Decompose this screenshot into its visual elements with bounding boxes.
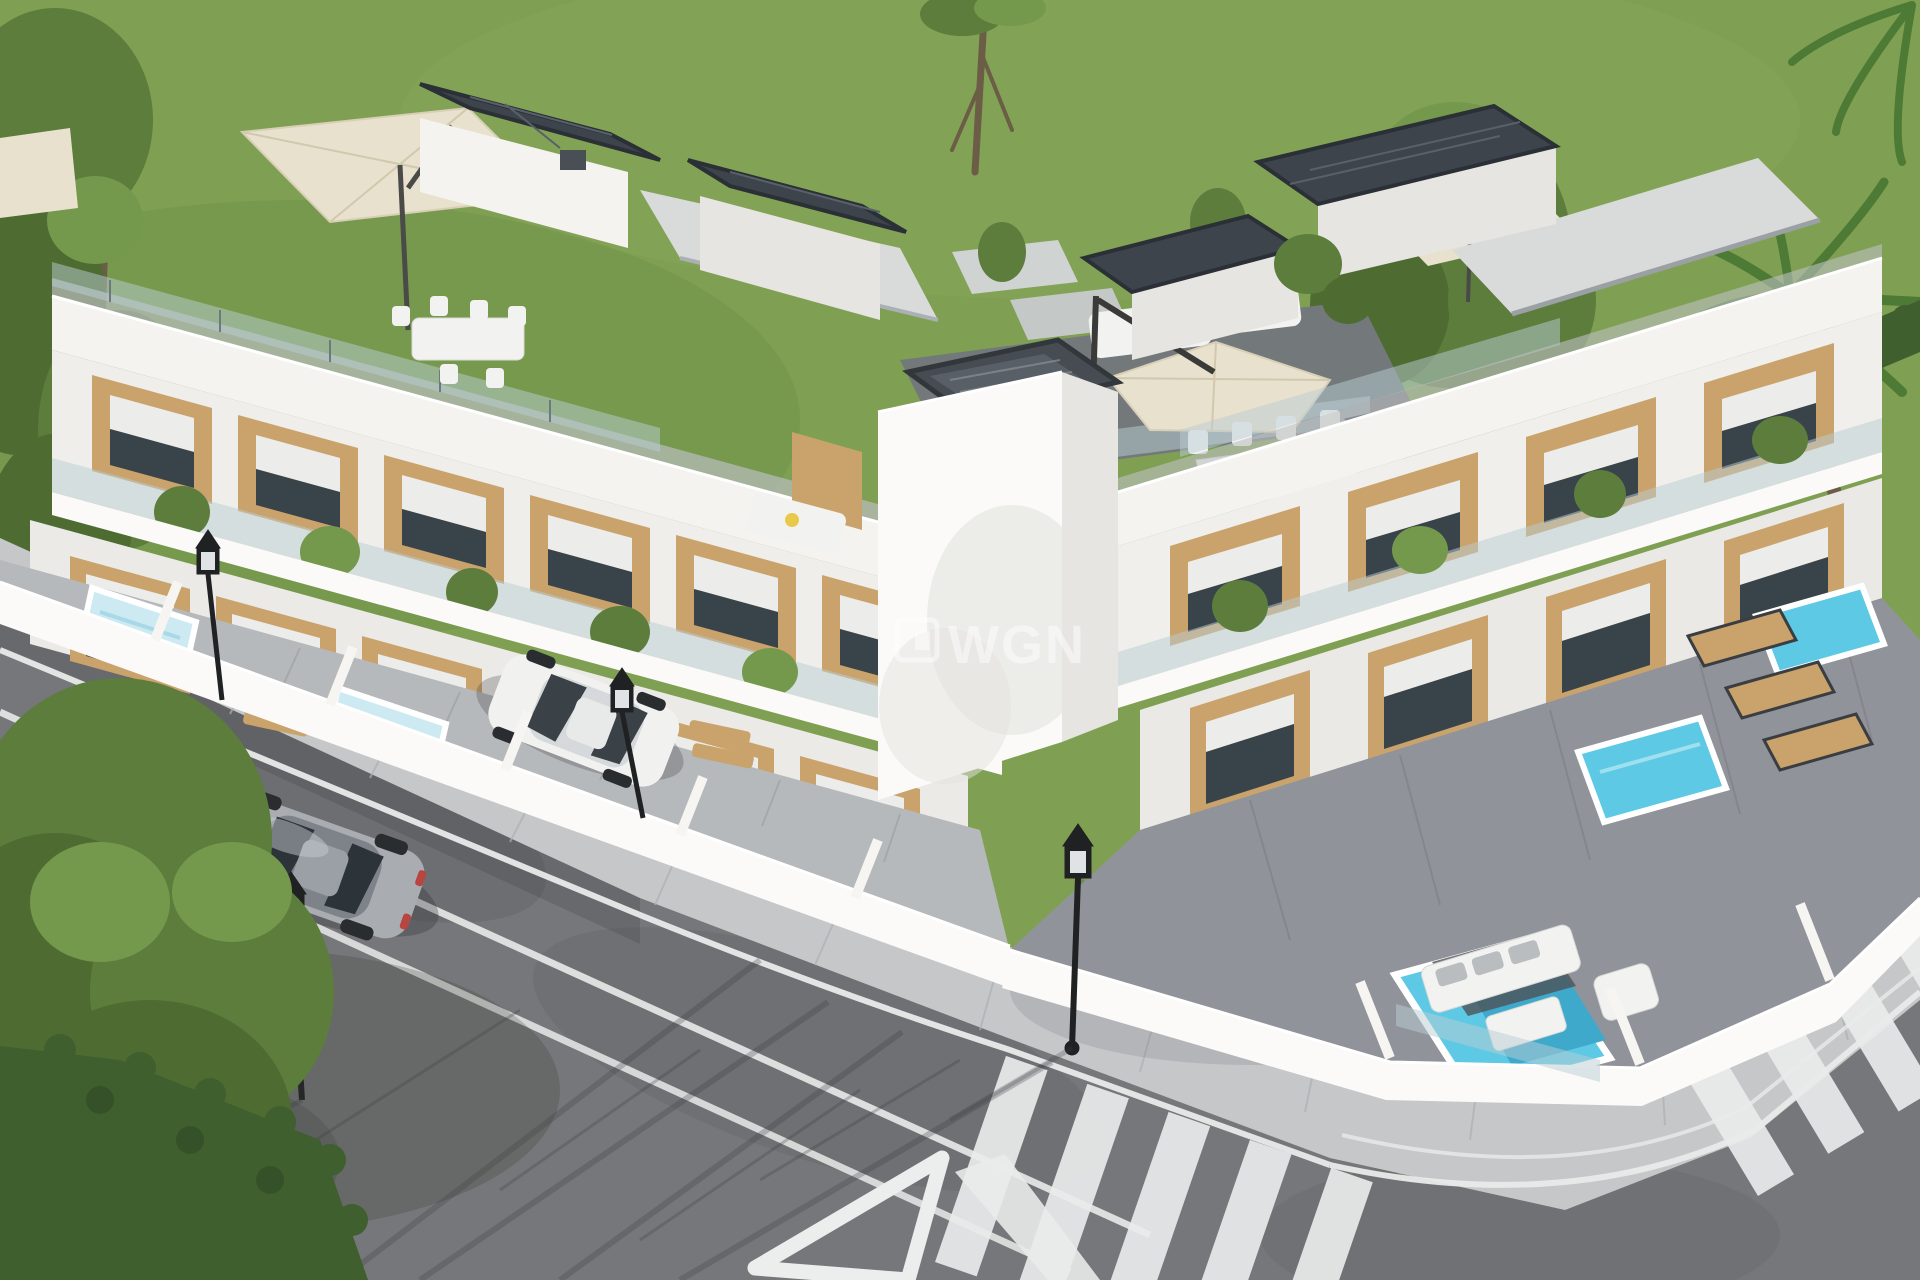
yellow-cushion xyxy=(785,513,799,527)
roof-shrub xyxy=(1322,276,1374,324)
potted-plant xyxy=(978,222,1026,282)
parasol-edge-left xyxy=(0,128,78,218)
tower-shaded-face xyxy=(1062,372,1118,742)
render-canvas: WGN xyxy=(0,0,1920,1280)
wgn-watermark-text: WGN xyxy=(948,615,1086,675)
architectural-render: WGN xyxy=(0,0,1920,1280)
wgn-logo-inner xyxy=(915,631,930,650)
roof-vent xyxy=(560,150,586,170)
